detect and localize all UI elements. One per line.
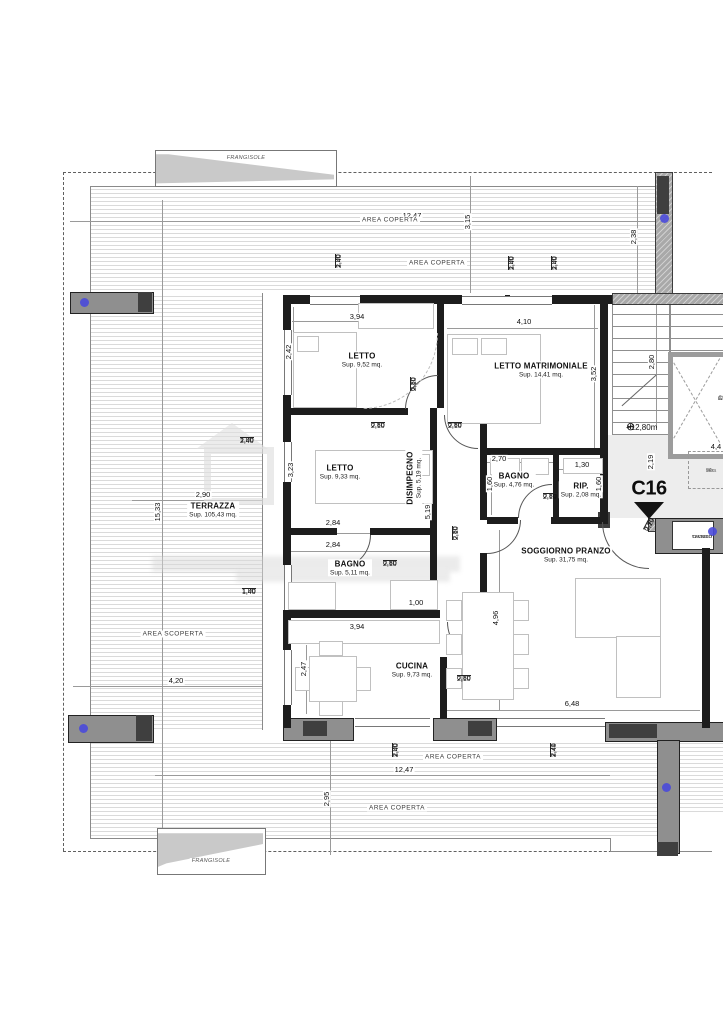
wall <box>283 610 440 618</box>
blue-marker <box>80 298 89 307</box>
dimension-label: 12,47 <box>394 766 415 774</box>
chair <box>513 634 529 655</box>
sofa <box>575 578 661 638</box>
window <box>310 296 360 305</box>
terrace-hatch-bottom-right <box>678 740 723 812</box>
dimension-label: 3,15 <box>464 214 472 231</box>
dimension-label: 1,30 <box>574 461 591 469</box>
area-label: AREA SCOPERTA <box>141 631 206 638</box>
dimension-label: 2,84 <box>325 519 342 527</box>
wall <box>283 528 337 535</box>
wall <box>437 295 444 408</box>
dimension-line <box>330 723 331 855</box>
chair <box>513 600 529 621</box>
area-label: AREA COPERTA <box>407 260 467 267</box>
unit-label: C16 <box>631 478 666 501</box>
blue-marker <box>660 214 669 223</box>
dimension-label: 2,47 <box>300 661 308 678</box>
terrace-hatch-top <box>90 186 655 293</box>
dimension-line <box>470 176 471 293</box>
chair <box>356 667 371 691</box>
dimension-line <box>73 686 262 687</box>
terrace-edge <box>610 838 611 852</box>
wall <box>370 528 437 535</box>
bath-fixture <box>288 582 336 610</box>
dimension-line <box>447 328 598 329</box>
dimension-label: 5,19 <box>424 504 432 521</box>
window <box>355 718 430 727</box>
room-label-cucina: CUCINASup. 9,73 mq. <box>390 661 434 678</box>
window <box>284 330 292 395</box>
room-label-letto-1: LETTOSup. 9,52 mq. <box>340 351 384 368</box>
room-label-bagno-2: BAGNOSup. 4,76 mq. <box>492 471 536 488</box>
pillar <box>657 842 678 856</box>
wall <box>702 548 710 728</box>
room-label-terrazza: TERRAZZASup. 105,43 mq. <box>187 501 239 518</box>
room-label-letto-2: LETTOSup. 9,33 mq. <box>318 463 362 480</box>
dimension-label: 2,19 <box>647 454 655 471</box>
dimension-label: 1,60 <box>486 476 494 493</box>
wall <box>283 482 291 565</box>
area-label: AREA COPERTA <box>367 805 427 812</box>
chair <box>319 641 343 656</box>
pillar <box>468 721 492 736</box>
dimension-label: 4,10 <box>516 318 533 326</box>
wardrobe <box>358 303 434 329</box>
chair <box>513 668 529 689</box>
boundary-dashed-left <box>63 172 64 851</box>
blue-marker <box>79 724 88 733</box>
wall <box>480 415 487 520</box>
area-label: FRANGISOLE <box>190 858 232 864</box>
window <box>462 296 552 305</box>
pillow <box>297 336 319 352</box>
blue-marker <box>662 783 671 792</box>
window <box>284 650 292 705</box>
dimension-label: 3,94 <box>349 623 366 631</box>
area-label: FRANGISOLE <box>225 155 267 161</box>
dimension-label: 15,33 <box>154 502 162 523</box>
dimension-label: 3,94 <box>349 313 366 321</box>
dimension-label: 3,52 <box>590 366 598 383</box>
pillow <box>481 338 507 355</box>
dimension-label: 2,84 <box>325 541 342 549</box>
watermark-house-icon <box>196 423 268 449</box>
area-label: AREA COPERTA <box>360 217 420 224</box>
room-label-soggiorno-pranzo: SOGGIORNO PRANZOSup. 31,75 mq. <box>519 546 612 563</box>
wall <box>283 395 291 442</box>
chair <box>319 701 343 716</box>
dimension-line <box>447 710 700 711</box>
room-label-disimpegno: DISIMPEGNOSup. 5,19 mq. <box>405 449 422 506</box>
pillow <box>452 338 478 355</box>
dimension-label: 1,60 <box>595 476 603 493</box>
parapet-wall <box>657 740 680 854</box>
dimension-label: 4,20 <box>168 677 185 685</box>
dimension-label: 4,96 <box>492 610 500 627</box>
chair <box>446 600 462 621</box>
wall <box>283 408 408 415</box>
pillar <box>303 721 327 736</box>
terrace-edge <box>262 293 263 730</box>
room-label-bagno-1: BAGNOSup. 5,11 mq. <box>328 559 372 576</box>
kitchen-table <box>309 656 357 702</box>
terrace-hatch-bottom <box>90 740 658 838</box>
dimension-label: 2,42 <box>285 344 293 361</box>
stair-treads <box>669 303 723 353</box>
wall <box>283 295 291 330</box>
floor-plan: C16 ⊕ +12,80m ASCENSORE CONDOMINIALE CAV… <box>0 0 723 1024</box>
dimension-label: 4,4 <box>710 443 722 451</box>
room-label-letto-matrimoniale: LETTO MATRIMONIALESup. 14,41 mq. <box>492 361 590 378</box>
dimension-label: 1,00 <box>408 599 425 607</box>
wall <box>551 517 608 524</box>
door-arc <box>487 520 521 554</box>
stair-treads <box>612 303 671 435</box>
chair <box>446 634 462 655</box>
watermark-house-icon <box>204 447 274 505</box>
pillar <box>657 176 669 214</box>
watermark <box>152 556 460 572</box>
dimension-label: 2,70 <box>491 455 508 463</box>
stairwell-wall <box>612 293 723 305</box>
dimension-label: 2,90 <box>195 491 212 499</box>
pillar <box>138 292 152 312</box>
dimension-label: 6,48 <box>564 700 581 708</box>
dimension-line <box>155 775 610 776</box>
window <box>497 718 605 727</box>
dimension-label: 3,23 <box>287 462 295 479</box>
wall <box>283 705 291 728</box>
dimension-label: 2,95 <box>323 791 331 808</box>
level-value: +12,80m <box>626 423 657 432</box>
sofa <box>616 636 661 698</box>
dimension-line <box>162 200 163 838</box>
dimension-label: 2,38 <box>630 229 638 246</box>
pillar <box>136 715 152 741</box>
pillar <box>609 724 657 738</box>
area-label: AREA COPERTA <box>423 754 483 761</box>
dimension-label: 2,80 <box>648 354 656 371</box>
